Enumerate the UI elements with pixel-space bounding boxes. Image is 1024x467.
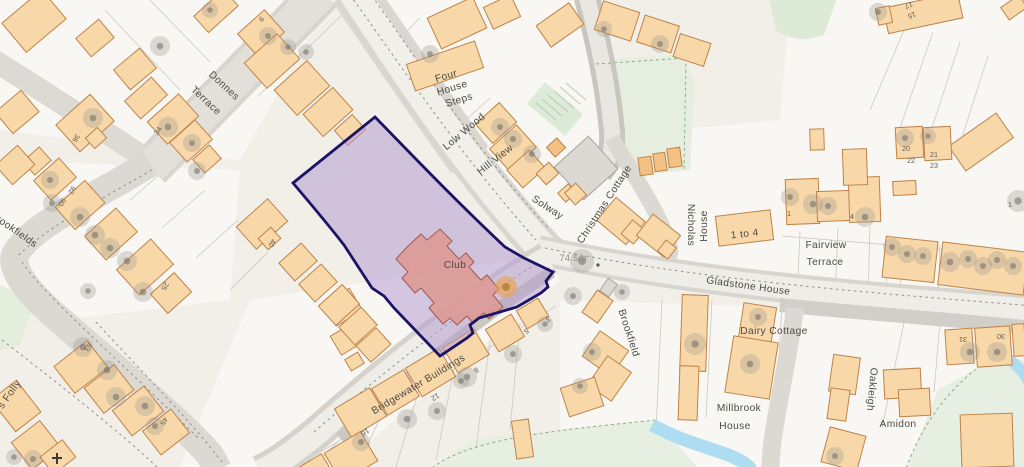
- tree-icon: [421, 45, 439, 63]
- tree-icon: [523, 145, 541, 163]
- building: [898, 388, 930, 417]
- tree-icon: [614, 284, 630, 300]
- map-label-dairy-cottage: Dairy Cottage: [740, 326, 807, 337]
- tree-icon: [70, 207, 90, 227]
- tree-icon: [6, 449, 22, 465]
- map-label-millbrook: Millbrook: [717, 403, 762, 414]
- tree-icon: [583, 343, 601, 361]
- tree-icon: [428, 402, 446, 420]
- building: [1012, 324, 1024, 357]
- tree-icon: [920, 128, 936, 144]
- tree-icon: [749, 308, 767, 326]
- tree-icon: [596, 21, 612, 37]
- tree-icon: [106, 387, 126, 407]
- tree-icon: [740, 354, 760, 374]
- tree-icon: [202, 2, 218, 18]
- tree-icon: [781, 188, 799, 206]
- map-label-1: 1: [787, 209, 791, 218]
- building: [680, 295, 709, 372]
- map-label-30: 30: [997, 332, 1005, 341]
- tree-icon: [960, 342, 980, 362]
- tree-icon: [83, 108, 103, 128]
- tree-icon: [41, 171, 59, 189]
- tree-icon: [150, 36, 170, 56]
- tree-icon: [453, 373, 469, 389]
- tree-icon: [80, 283, 96, 299]
- tree-icon: [914, 247, 932, 265]
- tree-icon: [572, 378, 588, 394]
- tree-icon: [684, 333, 706, 355]
- amber-tree-icon: [495, 276, 517, 298]
- tree-icon: [117, 251, 137, 271]
- tree-icon: [869, 3, 887, 21]
- tree-icon: [940, 252, 960, 272]
- map-label-terrace: Terrace: [807, 257, 844, 268]
- map-label-22: 22: [907, 156, 915, 165]
- building: [678, 366, 699, 421]
- tree-icon: [133, 282, 153, 302]
- tree-icon: [100, 238, 120, 258]
- tree-icon: [826, 447, 844, 465]
- map-label-club: Club: [444, 260, 467, 271]
- map-label-74-5m: 74.5m: [559, 253, 586, 263]
- tree-icon: [987, 342, 1007, 362]
- map-label-nicholas: Nicholas: [685, 204, 696, 246]
- tree-icon: [183, 134, 201, 152]
- building: [653, 152, 667, 171]
- building: [638, 156, 653, 176]
- tree-icon: [504, 345, 522, 363]
- tree-icon: [397, 409, 417, 429]
- tree-icon: [855, 207, 875, 227]
- tree-icon: [988, 251, 1006, 269]
- map-label-21: 21: [930, 150, 938, 159]
- map-canvas[interactable]: DonnesTerraceFourHouseStepsLow WoodHill …: [0, 0, 1024, 467]
- tree-icon: [564, 287, 582, 305]
- building: [893, 180, 917, 195]
- building: [715, 210, 773, 246]
- tree-icon: [1004, 257, 1022, 275]
- map-label-amidon: Amidon: [880, 419, 917, 430]
- map-label-fairview: Fairview: [805, 240, 846, 251]
- tree-icon: [97, 360, 117, 380]
- map-label-4: 4: [850, 212, 854, 221]
- map-label-house: House: [719, 421, 750, 432]
- building: [960, 413, 1014, 467]
- map-label-20: 20: [902, 144, 910, 153]
- tree-icon: [898, 245, 916, 263]
- tree-icon: [651, 35, 669, 53]
- tree-icon: [135, 396, 155, 416]
- spot-height-dot: [596, 263, 599, 266]
- map-label-house: House: [699, 210, 710, 241]
- building: [827, 388, 850, 421]
- building: [842, 149, 867, 186]
- tree-icon: [298, 44, 314, 60]
- building: [810, 129, 825, 150]
- tree-icon: [819, 197, 837, 215]
- tree-icon: [259, 27, 277, 45]
- map-label-31: 31: [959, 335, 967, 344]
- tree-icon: [280, 39, 296, 55]
- os-map: DonnesTerraceFourHouseStepsLow WoodHill …: [0, 0, 1024, 467]
- map-label-23: 23: [930, 161, 938, 170]
- map-label-1: 1: [1008, 200, 1012, 209]
- building: [667, 147, 683, 168]
- tree-icon: [188, 162, 206, 180]
